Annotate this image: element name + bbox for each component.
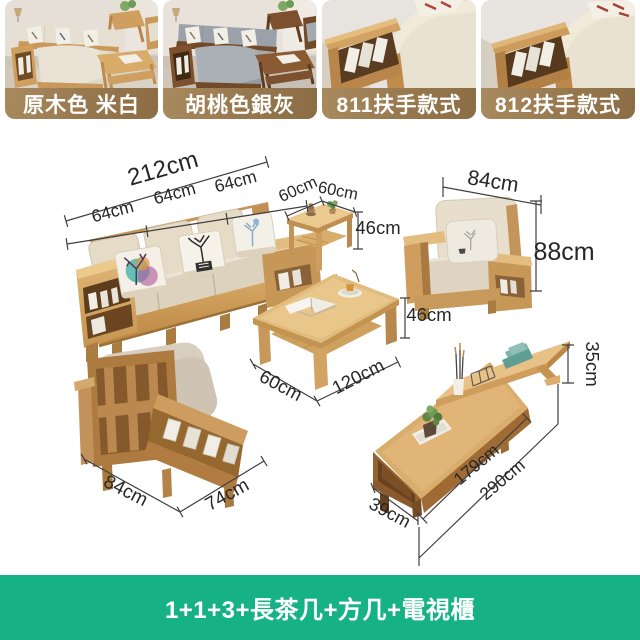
svg-text:35cm: 35cm [582, 341, 603, 386]
svg-text:60cm: 60cm [256, 365, 306, 405]
svg-text:88cm: 88cm [533, 238, 594, 266]
svg-text:84cm: 84cm [100, 471, 151, 511]
svg-text:46cm: 46cm [406, 304, 451, 325]
svg-text:120cm: 120cm [329, 354, 388, 398]
svg-text:60cm: 60cm [276, 173, 320, 206]
svg-text:64cm: 64cm [212, 166, 259, 196]
svg-text:60cm: 60cm [316, 178, 359, 203]
svg-text:64cm: 64cm [89, 196, 136, 226]
svg-text:46cm: 46cm [355, 217, 400, 238]
